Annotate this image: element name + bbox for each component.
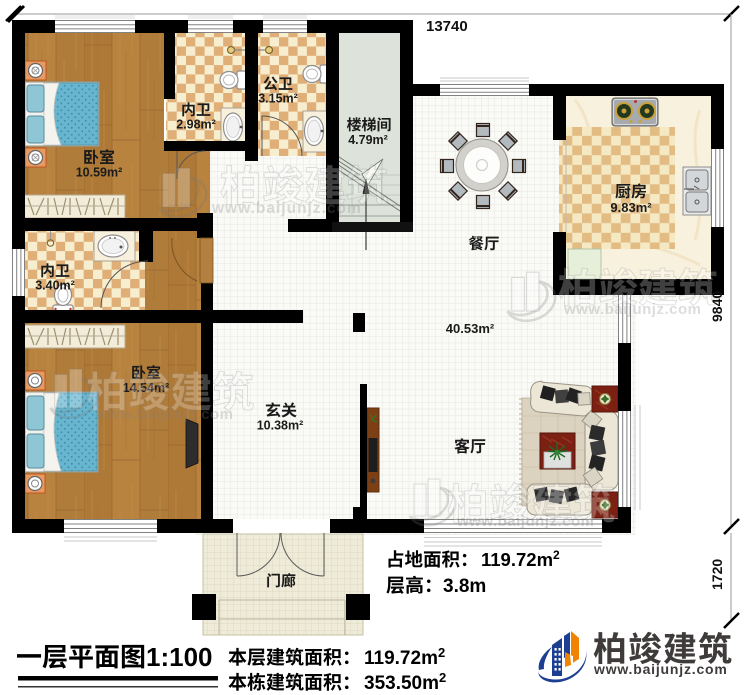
svg-text:3.8m: 3.8m — [443, 576, 486, 597]
svg-text:2.98m²: 2.98m² — [176, 118, 216, 132]
svg-text:9840: 9840 — [709, 291, 725, 322]
svg-text:www.baijunjz.com: www.baijunjz.com — [563, 301, 701, 318]
svg-text:3.15m²: 3.15m² — [258, 92, 298, 106]
svg-text:119.72m2: 119.72m2 — [364, 645, 445, 669]
svg-text:353.50m2: 353.50m2 — [364, 670, 446, 694]
svg-text:3.40m²: 3.40m² — [35, 279, 75, 293]
svg-text:4.79m²: 4.79m² — [348, 133, 388, 147]
svg-text:www.baijunjz.com: www.baijunjz.com — [456, 513, 594, 530]
svg-text:1:100: 1:100 — [146, 642, 213, 672]
svg-text:1720: 1720 — [709, 559, 725, 590]
svg-text:www.baijunjz.com: www.baijunjz.com — [211, 200, 362, 217]
svg-text:13740: 13740 — [426, 18, 468, 35]
svg-text:10.59m²: 10.59m² — [76, 166, 123, 180]
svg-text:9.83m²: 9.83m² — [610, 200, 652, 215]
svg-text:www.baijunjz.com: www.baijunjz.com — [95, 406, 233, 423]
svg-text:119.72m2: 119.72m2 — [481, 548, 560, 570]
svg-text:10.38m²: 10.38m² — [257, 419, 304, 433]
svg-text:www.baijunjz.com: www.baijunjz.com — [593, 661, 728, 677]
svg-text:40.53m²: 40.53m² — [446, 321, 495, 336]
